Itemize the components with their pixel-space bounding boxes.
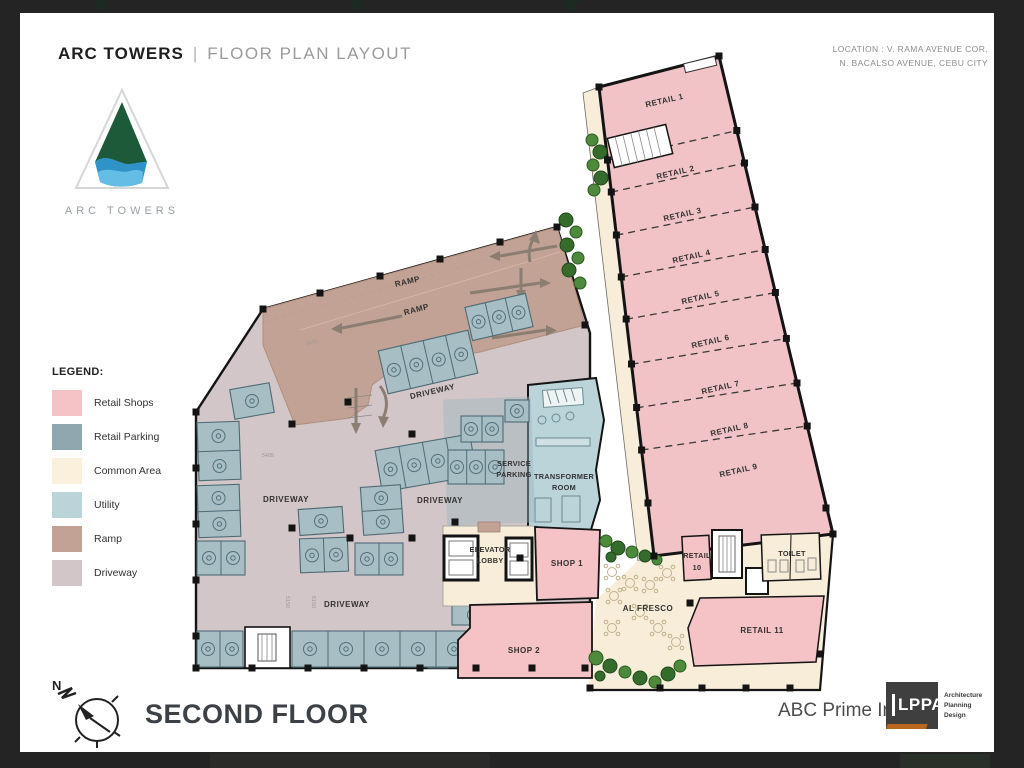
dimension-text: 6150	[310, 596, 316, 608]
shop-2-label: SHOP 2	[508, 646, 540, 655]
lppa-acronym: LPPA	[892, 694, 944, 716]
lppa-tagline-line: Architecture	[944, 691, 1014, 701]
elevator-lobby-label-1: ELEVATOR	[470, 545, 511, 554]
transformer-room-label-2: ROOM	[552, 483, 576, 492]
presentation-frame: { "header": { "brand": "ARC TOWERS", "di…	[0, 0, 1024, 768]
dimension-text: 5150	[284, 596, 290, 608]
driveway-label: DRIVEWAY	[417, 496, 463, 505]
stairwell	[245, 627, 290, 668]
north-compass: N	[50, 682, 130, 759]
lppa-orange-bar	[886, 724, 928, 729]
al-fresco-label: AL FRESCO	[623, 604, 674, 613]
compass-n-label: N	[52, 678, 61, 693]
service-parking-label-1: SERVICE	[497, 459, 531, 468]
lppa-tagline-line: Planning	[944, 701, 1014, 711]
service-parking-label-2: PARKING	[496, 470, 531, 479]
floor-title: SECOND FLOOR	[145, 699, 369, 730]
driveway-label: DRIVEWAY	[263, 495, 309, 504]
lppa-logo: LPPA Architecture Planning Design	[886, 682, 938, 729]
transformer-room-label-1: TRANSFORMER	[534, 472, 594, 481]
dimension-text: 5405	[262, 453, 274, 459]
lppa-tagline: Architecture Planning Design	[944, 691, 1014, 721]
retail-10-label-2: 10	[693, 563, 702, 572]
lppa-tagline-line: Design	[944, 711, 1014, 721]
retail-10-label-1: RETAIL	[683, 551, 711, 560]
shop-1-label: SHOP 1	[551, 559, 583, 568]
floor-plan-drawing: 3475 5405 5150 6150 RETAIL 1 RETAIL 2 RE…	[0, 0, 1024, 768]
driveway-label: DRIVEWAY	[324, 600, 370, 609]
elevator-lobby-label-2: LOBBY	[476, 556, 503, 565]
retail-11-label: RETAIL 11	[740, 626, 783, 635]
toilet-label: TOILET	[778, 549, 806, 558]
compass-icon	[50, 682, 130, 754]
